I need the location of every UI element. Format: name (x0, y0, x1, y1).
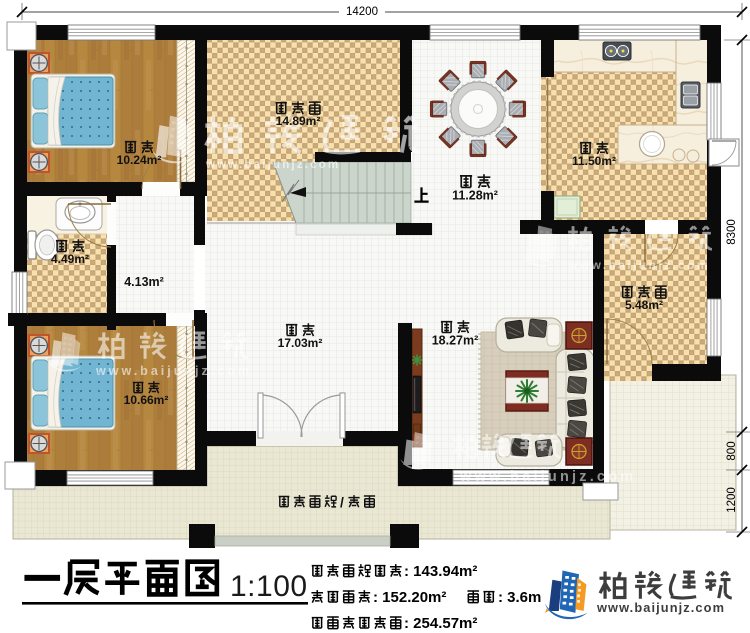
svg-text:14200: 14200 (346, 6, 378, 18)
svg-text:1:100: 1:100 (230, 570, 308, 603)
svg-text:11.50m²: 11.50m² (572, 154, 616, 168)
svg-text:18.27m²: 18.27m² (432, 334, 479, 348)
svg-text:5.48m²: 5.48m² (625, 298, 663, 312)
svg-text:14.89m²: 14.89m² (276, 114, 321, 128)
svg-text:www.baijunjz.com: www.baijunjz.com (205, 159, 340, 171)
svg-text:www.baijunjz.com: www.baijunjz.com (567, 258, 710, 272)
svg-text:: 3.6m: : 3.6m (498, 589, 541, 606)
svg-text:: 143.94m²: : 143.94m² (404, 563, 477, 580)
svg-text:1200: 1200 (726, 487, 738, 513)
svg-text:8300: 8300 (726, 219, 738, 245)
svg-text:: 152.20m²: : 152.20m² (373, 589, 446, 606)
svg-text:10.24m²: 10.24m² (117, 153, 162, 167)
svg-text:4.49m²: 4.49m² (51, 252, 89, 266)
svg-text:/: / (340, 494, 344, 510)
svg-text:17.03m²: 17.03m² (278, 336, 323, 350)
svg-text:11.28m²: 11.28m² (452, 189, 498, 203)
svg-text:www.baijunjz.com: www.baijunjz.com (95, 364, 252, 378)
svg-text:800: 800 (726, 441, 738, 460)
svg-text:4.13m²: 4.13m² (124, 275, 164, 289)
svg-text:10.66m²: 10.66m² (124, 393, 169, 407)
svg-text:: 254.57m²: : 254.57m² (404, 615, 477, 632)
svg-text:www.baijunjz.com: www.baijunjz.com (596, 600, 725, 615)
svg-text:www.baijunjz.com: www.baijunjz.com (459, 469, 636, 485)
